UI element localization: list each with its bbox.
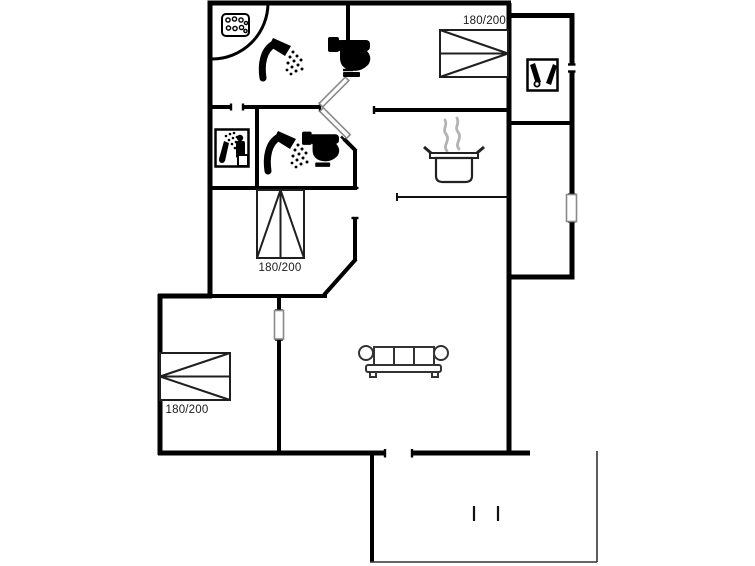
door-leaf-bedroom3 xyxy=(275,311,284,340)
door-leaf-entrance xyxy=(567,195,577,222)
door-leaf-bath1 xyxy=(319,77,349,107)
door-leaves xyxy=(275,77,577,339)
sofa-icon xyxy=(359,346,448,377)
cooking-pot-icon xyxy=(424,118,484,182)
floorplan-canvas: 180/200 180/200 180/200 xyxy=(0,0,755,566)
wall-bedroom2-corner xyxy=(324,259,356,295)
bed-label-middle: 180/200 xyxy=(259,262,302,274)
bed-top-right xyxy=(440,30,508,77)
steam-icon xyxy=(445,118,460,151)
terrace-outline xyxy=(370,451,597,562)
sauna-icon xyxy=(216,130,249,167)
cleaning-equipment-icon xyxy=(528,60,558,91)
bed-label-top-right: 180/200 xyxy=(463,15,506,27)
door-leaf-bath2 xyxy=(320,108,350,138)
bed-bottom-left xyxy=(160,353,230,400)
shower-icon xyxy=(262,38,303,78)
bed-middle xyxy=(257,190,304,258)
floorplan-svg: 180/200 180/200 180/200 xyxy=(0,0,755,566)
whirlpool-icon xyxy=(222,14,249,36)
terrace-step-marks xyxy=(474,506,498,521)
kitchen-counter-line xyxy=(397,193,509,201)
bed-label-bottom-left: 180/200 xyxy=(166,404,209,416)
